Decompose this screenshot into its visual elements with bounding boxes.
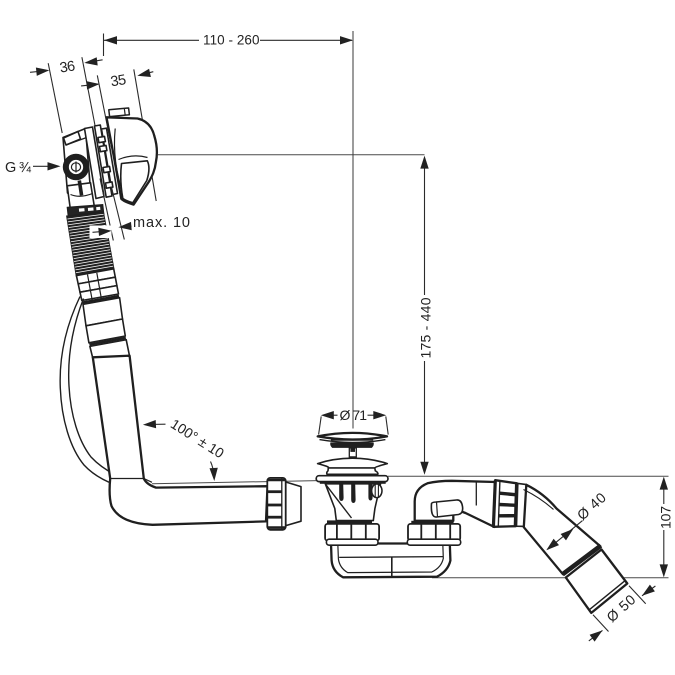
svg-text:100° ± 10: 100° ± 10 <box>168 416 227 462</box>
svg-text:Ø 40: Ø 40 <box>574 490 609 524</box>
svg-text:36: 36 <box>59 58 77 76</box>
svg-text:Ø 71: Ø 71 <box>340 407 368 423</box>
svg-text:107: 107 <box>657 506 673 529</box>
svg-text:35: 35 <box>110 72 128 90</box>
svg-text:max. 10: max. 10 <box>133 215 190 231</box>
svg-text:110 - 260: 110 - 260 <box>203 32 260 47</box>
svg-text:175 - 440: 175 - 440 <box>417 297 433 358</box>
svg-text:G ¾: G ¾ <box>5 160 32 176</box>
